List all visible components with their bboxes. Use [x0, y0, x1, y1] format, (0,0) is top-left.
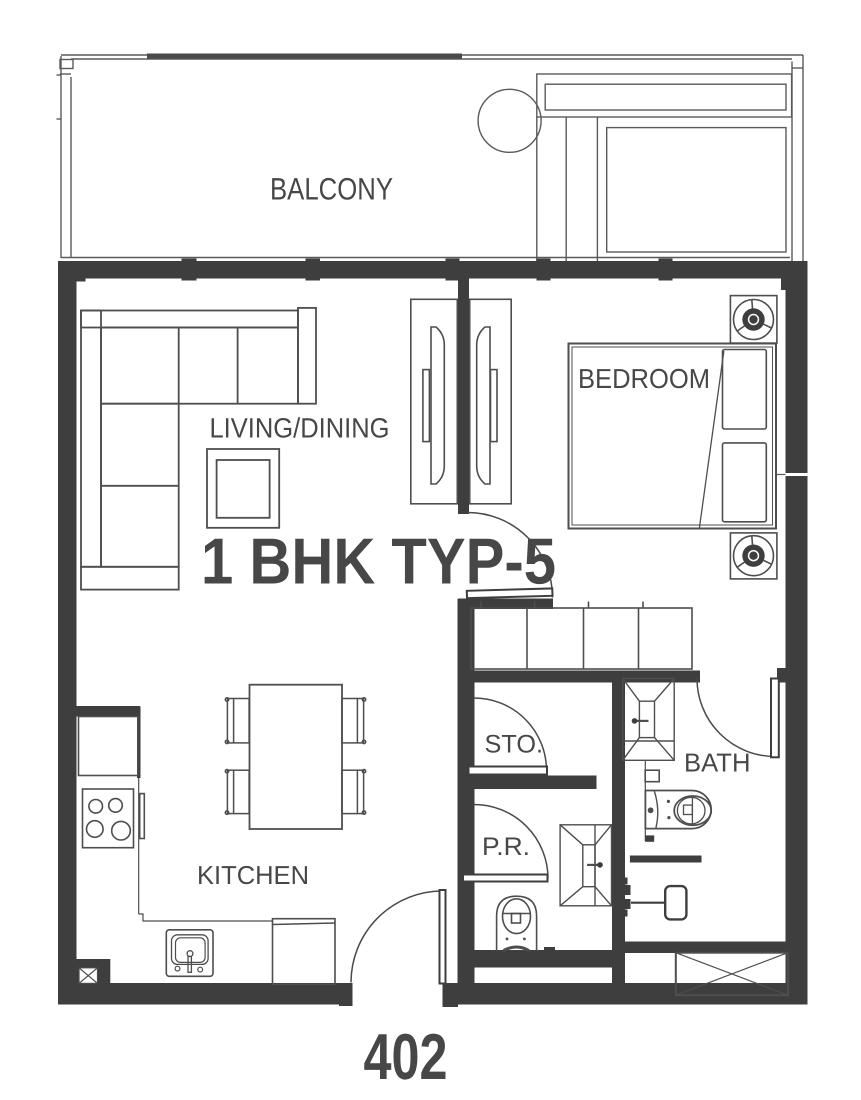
- svg-text:402: 402: [364, 1020, 448, 1093]
- svg-text:P.R.: P.R.: [482, 833, 530, 861]
- svg-text:1 BHK TYP-5: 1 BHK TYP-5: [201, 525, 556, 598]
- svg-text:STO.: STO.: [485, 731, 544, 759]
- svg-text:LIVING/DINING: LIVING/DINING: [210, 413, 390, 444]
- svg-text:BALCONY: BALCONY: [270, 172, 393, 207]
- svg-text:BATH: BATH: [684, 748, 751, 778]
- svg-text:KITCHEN: KITCHEN: [197, 860, 309, 890]
- svg-text:BEDROOM: BEDROOM: [578, 363, 710, 394]
